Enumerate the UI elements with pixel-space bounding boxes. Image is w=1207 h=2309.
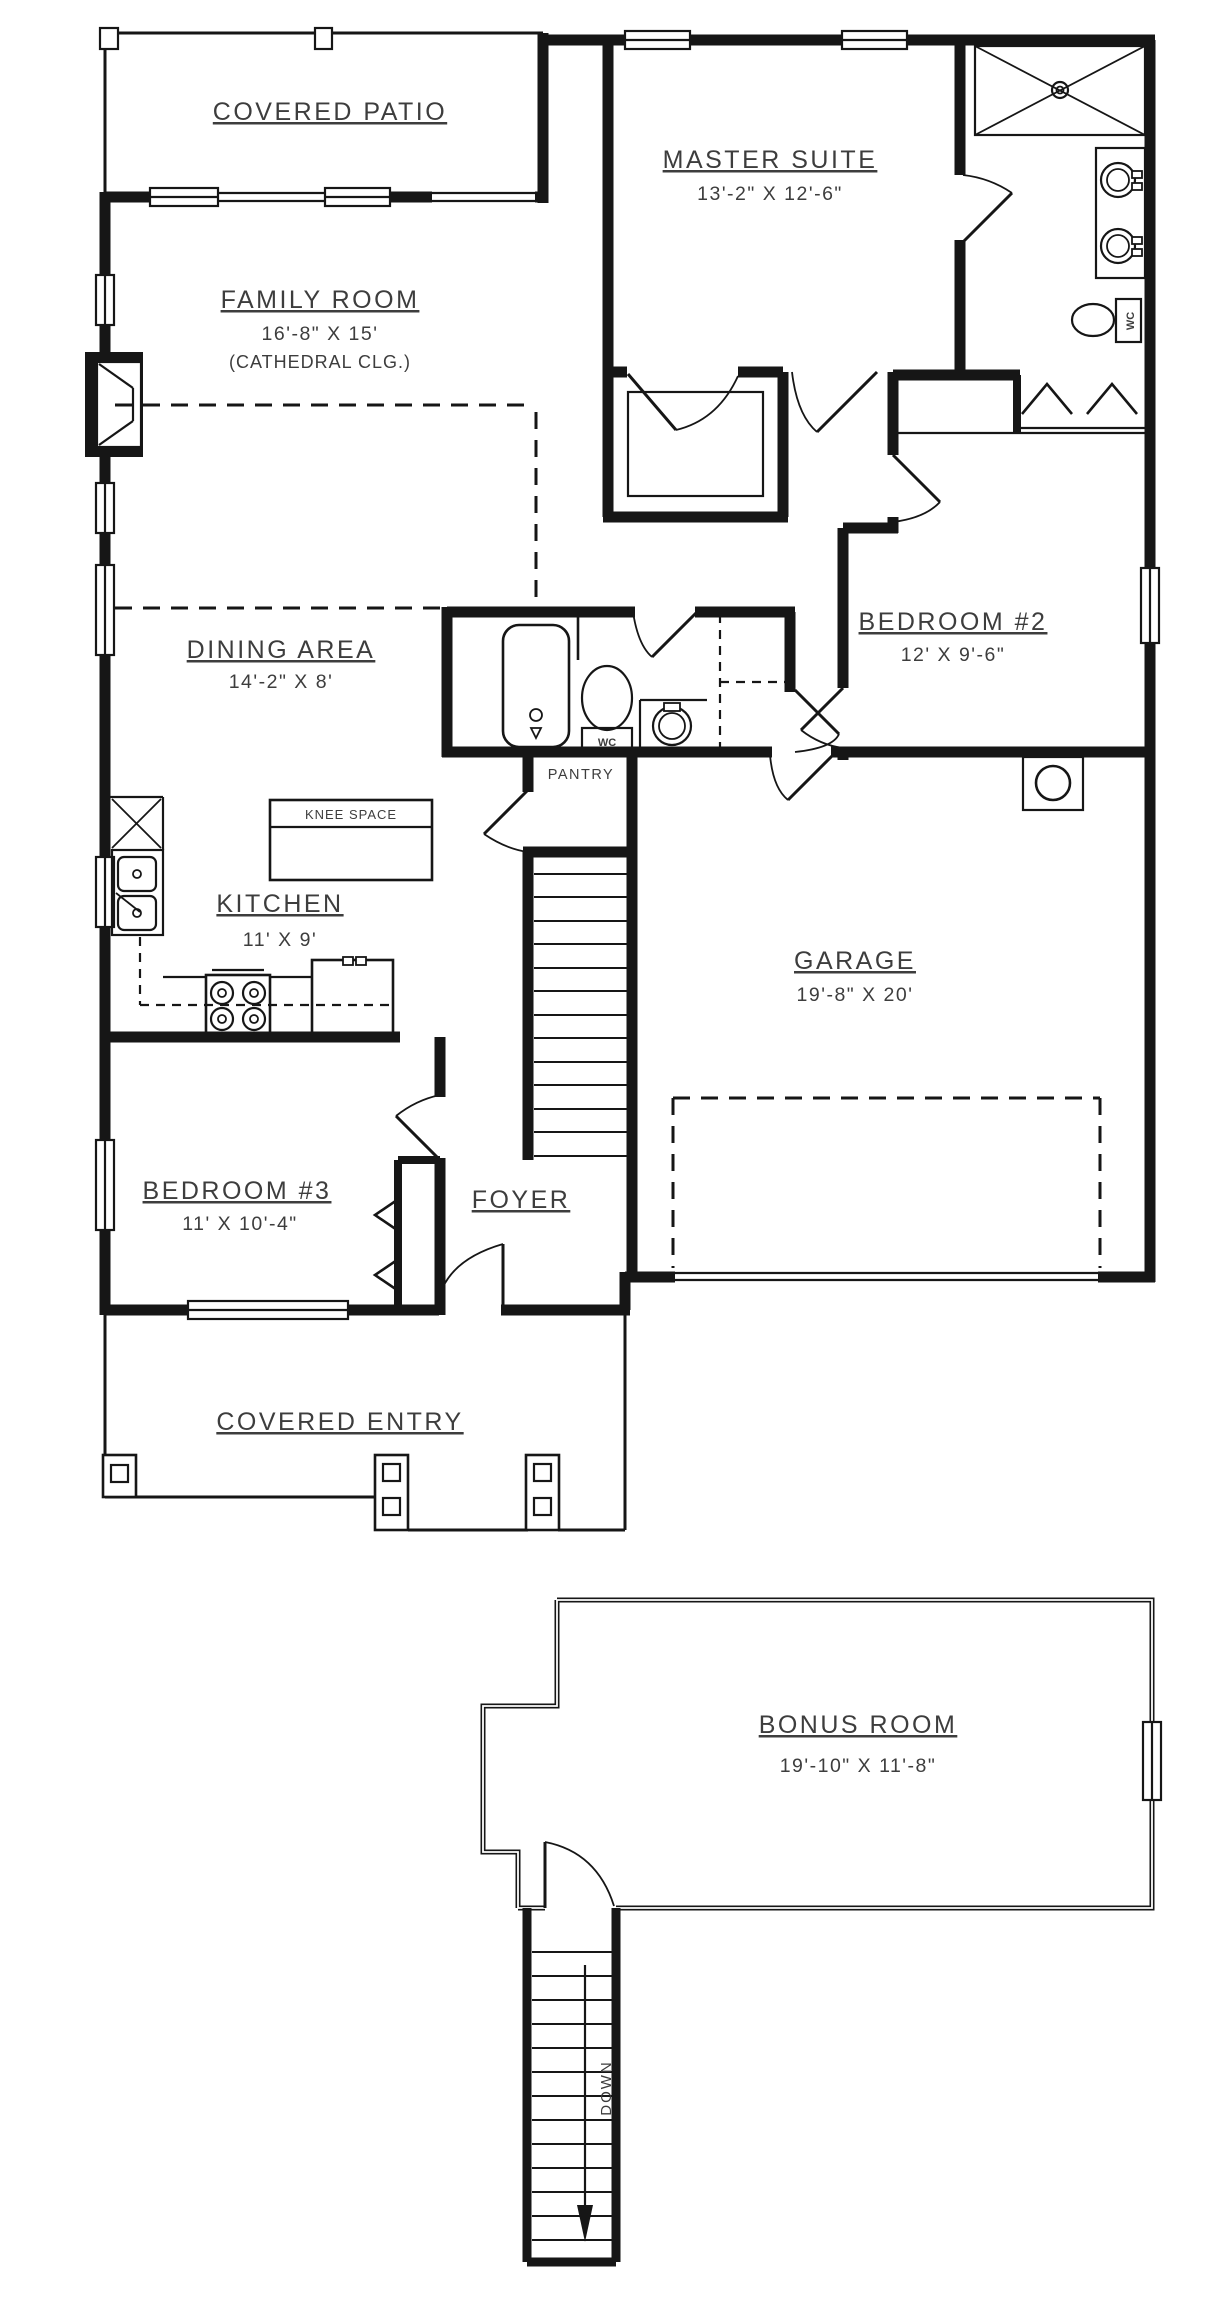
door-swings [396,175,1012,1310]
main-floor-plan: WC WC [85,28,1159,1530]
room-label-kitchen: KITCHEN [216,890,343,918]
room-label-garage: GARAGE [794,947,916,975]
master-bath-fixtures: WC [975,46,1145,342]
fireplace-icon [85,352,143,457]
door-swing [545,1842,614,1908]
patio-post [315,28,332,49]
door-swing [484,790,528,852]
door-swing [628,374,738,430]
porch-post [103,1455,136,1497]
room-dims-bedroom-2: 12' X 9'-6" [901,644,1006,666]
down-arrow [577,1965,593,2242]
garage-door [673,1273,1100,1280]
main-stairs [534,874,627,1156]
shower-icon [975,46,1145,135]
room-label-family-room: FAMILY ROOM [221,286,420,314]
room-label-bedroom-3: BEDROOM #3 [143,1177,332,1205]
window [96,275,114,325]
door-swing [396,1095,440,1160]
room-dims-master-suite: 13'-2" X 12'-6" [697,183,843,205]
front-door-swing [437,1244,503,1310]
closet-shelf [628,392,763,496]
window [325,188,390,206]
bonus-walls [483,1600,1152,1908]
bonus-room-plan: DOWN BONUS ROOM 19'-10" X 11'-8" [483,1600,1161,2262]
kitchen-island: KNEE SPACE [270,800,432,880]
room-label-dining-area: DINING AREA [187,636,376,664]
corner-cabinet-icon [110,797,163,850]
refrigerator-icon [312,957,393,1035]
room-label-foyer: FOYER [472,1186,571,1214]
room-label-bedroom-2: BEDROOM #2 [859,608,1048,636]
window [96,483,114,533]
room-label-bonus-room: BONUS ROOM [759,1711,958,1739]
room-dims-family-room: 16'-8" X 15' [262,323,379,345]
window [96,565,114,655]
window [150,188,218,206]
knee-space-label: KNEE SPACE [305,807,397,822]
window [1143,1722,1161,1800]
window [842,31,907,49]
hall-bath-fixtures: WC [503,625,707,752]
door-swing [963,175,1012,242]
wc-label: WC [1125,312,1137,330]
window [188,1301,348,1319]
door-swing [792,372,877,432]
water-heater-icon [1023,757,1083,810]
linen-closet [720,614,788,750]
toilet-icon: WC [582,666,632,752]
kitchen-sink-icon [112,850,163,935]
toilet-icon: WC [1072,299,1141,342]
porch-pier [526,1455,559,1530]
room-note-family-room: (CATHEDRAL CLG.) [229,352,411,372]
room-dims-garage: 19'-8" X 20' [797,984,914,1006]
patio-post [100,28,118,49]
double-vanity-icon [1096,148,1145,278]
room-label-covered-patio: COVERED PATIO [213,98,447,126]
door-swing [770,755,833,800]
door-swing [633,612,697,657]
floor-plan-drawing: WC WC [0,0,1207,2304]
stove-icon [206,970,270,1035]
door-swing [893,455,940,522]
ceiling-break-lines [115,405,536,608]
room-label-master-suite: MASTER SUITE [663,146,878,174]
room-label-covered-entry: COVERED ENTRY [216,1408,463,1436]
wc-label: WC [598,737,616,749]
window [625,31,690,49]
room-dims-dining-area: 14'-2" X 8' [229,671,334,693]
sink-icon [640,700,707,750]
porch-pier [375,1455,408,1530]
room-dims-kitchen: 11' X 9' [243,929,317,951]
down-label: DOWN [598,2060,615,2116]
room-dims-bonus-room: 19'-10" X 11'-8" [780,1755,937,1777]
room-label-pantry: PANTRY [548,767,614,783]
room-dims-bedroom-3: 11' X 10'-4" [182,1213,297,1235]
floor-plan-page: WC WC [0,0,1207,2304]
bonus-stairwell: DOWN [527,1908,616,2262]
window [96,1140,114,1230]
garage-door-track [673,1098,1100,1268]
room-labels: COVERED PATIO FAMILY ROOM 16'-8" X 15' (… [143,98,1048,1436]
window [1141,568,1159,643]
bathtub-icon [503,625,569,747]
